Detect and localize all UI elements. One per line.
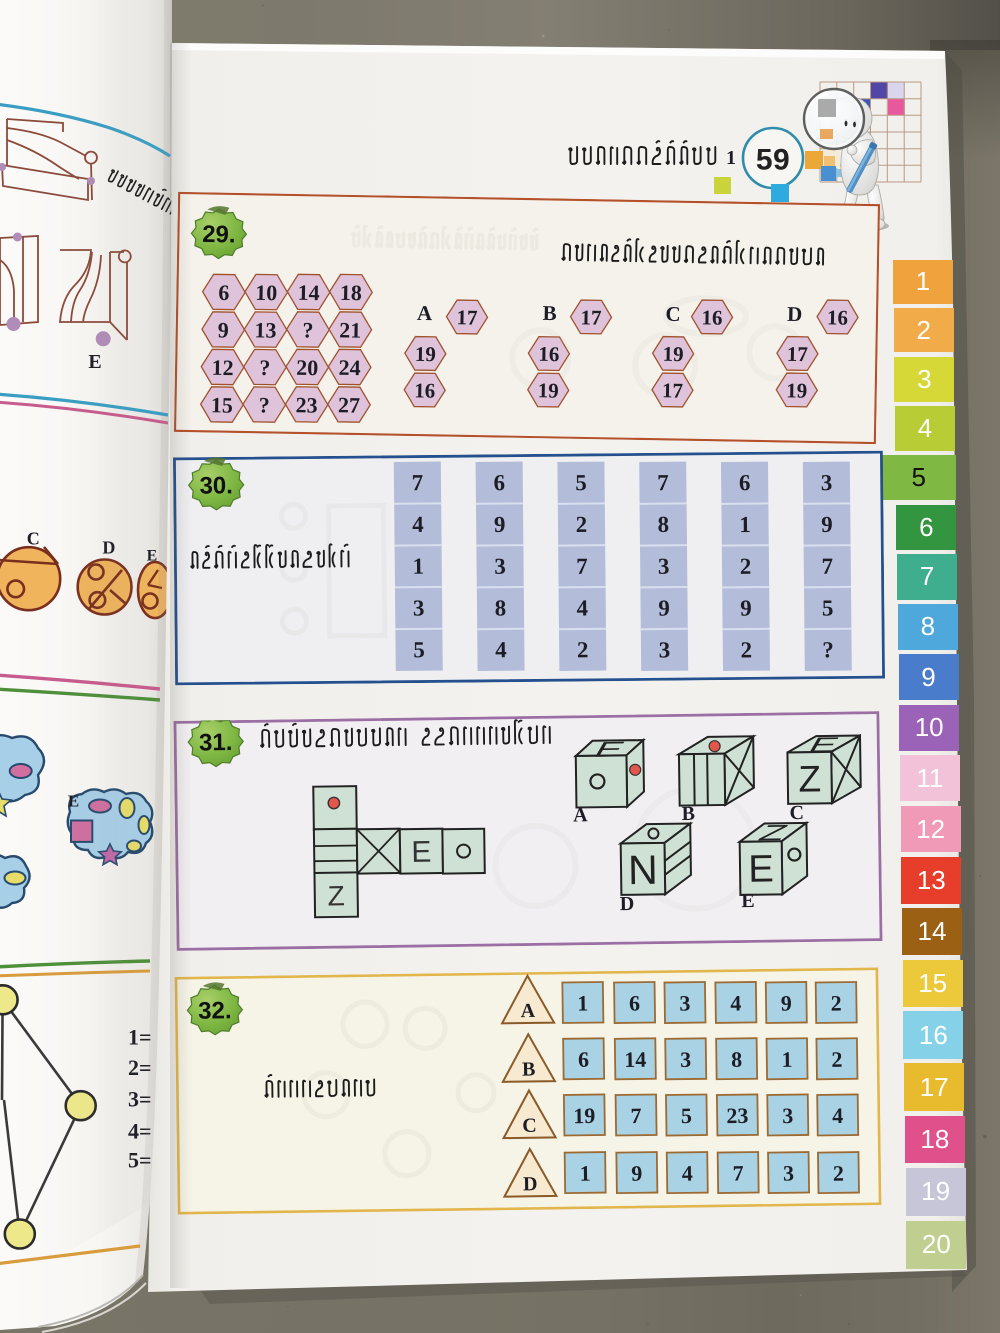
svg-text:C: C bbox=[665, 302, 681, 326]
svg-text:7: 7 bbox=[576, 554, 588, 579]
svg-text:4: 4 bbox=[682, 1161, 693, 1186]
svg-text:5: 5 bbox=[575, 470, 587, 495]
svg-text:E: E bbox=[741, 890, 755, 912]
svg-text:?: ? bbox=[259, 355, 270, 380]
svg-text:20: 20 bbox=[296, 355, 318, 380]
svg-text:3: 3 bbox=[658, 554, 670, 579]
svg-text:9: 9 bbox=[631, 1161, 642, 1186]
svg-text:5: 5 bbox=[822, 595, 834, 620]
svg-text:6: 6 bbox=[629, 990, 640, 1015]
svg-text:3: 3 bbox=[494, 554, 506, 579]
svg-text:2: 2 bbox=[740, 554, 752, 579]
svg-text:7: 7 bbox=[821, 554, 833, 579]
svg-text:23: 23 bbox=[295, 392, 317, 417]
svg-text:17: 17 bbox=[662, 378, 683, 402]
svg-text:7: 7 bbox=[732, 1161, 743, 1186]
svg-text:C: C bbox=[522, 1115, 537, 1137]
svg-text:?: ? bbox=[822, 637, 834, 662]
svg-text:9: 9 bbox=[218, 317, 229, 342]
svg-text:2: 2 bbox=[576, 512, 588, 537]
svg-text:4: 4 bbox=[576, 596, 588, 621]
svg-text:?: ? bbox=[259, 392, 270, 417]
svg-text:16: 16 bbox=[414, 378, 435, 402]
svg-text:8: 8 bbox=[495, 596, 507, 621]
svg-text:19: 19 bbox=[786, 378, 807, 402]
svg-text:7: 7 bbox=[630, 1103, 641, 1128]
svg-text:32.: 32. bbox=[198, 997, 232, 1024]
svg-text:10: 10 bbox=[255, 280, 277, 305]
svg-text:12: 12 bbox=[211, 355, 233, 380]
svg-text:3: 3 bbox=[679, 991, 690, 1016]
svg-text:7: 7 bbox=[412, 470, 424, 495]
svg-text:A: A bbox=[573, 804, 588, 826]
svg-text:?: ? bbox=[302, 317, 313, 342]
svg-text:29.: 29. bbox=[202, 221, 236, 249]
svg-text:7: 7 bbox=[657, 470, 669, 495]
svg-text:1: 1 bbox=[781, 1047, 792, 1072]
svg-text:N: N bbox=[628, 847, 658, 893]
svg-text:13: 13 bbox=[254, 317, 276, 342]
svg-text:1: 1 bbox=[412, 554, 424, 579]
svg-text:3: 3 bbox=[659, 637, 671, 662]
svg-text:D: D bbox=[620, 893, 635, 915]
svg-text:4: 4 bbox=[495, 637, 507, 662]
svg-text:8: 8 bbox=[657, 512, 669, 537]
svg-text:14: 14 bbox=[624, 1047, 646, 1072]
svg-text:6: 6 bbox=[218, 280, 229, 305]
svg-text:27: 27 bbox=[338, 392, 360, 417]
svg-text:9: 9 bbox=[658, 596, 670, 621]
svg-text:19: 19 bbox=[573, 1103, 595, 1128]
svg-text:5: 5 bbox=[413, 637, 425, 662]
svg-text:24: 24 bbox=[338, 355, 360, 380]
svg-text:2: 2 bbox=[740, 637, 752, 662]
svg-text:3: 3 bbox=[782, 1103, 793, 1128]
svg-text:C: C bbox=[27, 529, 40, 549]
svg-text:3: 3 bbox=[413, 596, 425, 621]
svg-text:16: 16 bbox=[701, 305, 722, 329]
svg-text:14: 14 bbox=[297, 280, 319, 305]
svg-text:A: A bbox=[417, 301, 433, 325]
svg-text:D: D bbox=[787, 302, 803, 326]
svg-text:9: 9 bbox=[740, 596, 752, 621]
svg-text:E: E bbox=[748, 847, 774, 890]
svg-text:Z: Z bbox=[798, 758, 821, 799]
svg-text:D: D bbox=[523, 1173, 538, 1195]
svg-text:4: 4 bbox=[730, 990, 741, 1015]
svg-text:19: 19 bbox=[662, 342, 683, 366]
svg-text:8: 8 bbox=[731, 1047, 742, 1072]
svg-text:E: E bbox=[411, 836, 431, 869]
svg-text:1: 1 bbox=[739, 512, 751, 537]
svg-text:2: 2 bbox=[577, 637, 589, 662]
svg-text:30.: 30. bbox=[199, 472, 233, 499]
svg-text:Z: Z bbox=[327, 880, 345, 911]
svg-text:19: 19 bbox=[538, 378, 559, 402]
svg-text:6: 6 bbox=[739, 470, 751, 495]
svg-text:16: 16 bbox=[538, 342, 559, 366]
svg-text:4: 4 bbox=[832, 1103, 843, 1128]
svg-text:1: 1 bbox=[579, 1161, 590, 1186]
svg-text:21: 21 bbox=[339, 317, 361, 342]
svg-text:3: 3 bbox=[783, 1161, 794, 1186]
svg-text:17: 17 bbox=[580, 305, 601, 329]
svg-text:2: 2 bbox=[833, 1161, 844, 1186]
svg-text:23: 23 bbox=[726, 1103, 748, 1128]
svg-text:15: 15 bbox=[211, 392, 233, 417]
svg-text:19: 19 bbox=[415, 342, 436, 366]
svg-text:6: 6 bbox=[493, 470, 505, 495]
svg-text:9: 9 bbox=[781, 990, 792, 1015]
svg-text:1: 1 bbox=[577, 990, 588, 1015]
svg-text:B: B bbox=[542, 301, 556, 325]
svg-text:B: B bbox=[522, 1058, 536, 1080]
svg-text:2: 2 bbox=[831, 1047, 842, 1072]
svg-text:B: B bbox=[681, 803, 695, 825]
svg-text:31.: 31. bbox=[199, 729, 233, 756]
svg-text:6: 6 bbox=[578, 1047, 589, 1072]
svg-text:17: 17 bbox=[787, 342, 808, 366]
svg-text:9: 9 bbox=[821, 512, 833, 537]
svg-text:18: 18 bbox=[340, 280, 362, 305]
svg-text:A: A bbox=[521, 1000, 536, 1022]
svg-text:17: 17 bbox=[456, 305, 477, 329]
svg-text:3: 3 bbox=[821, 470, 833, 495]
svg-text:3: 3 bbox=[680, 1047, 691, 1072]
svg-text:9: 9 bbox=[494, 512, 506, 537]
svg-text:16: 16 bbox=[827, 305, 848, 329]
svg-text:5: 5 bbox=[681, 1103, 692, 1128]
svg-text:4: 4 bbox=[412, 512, 424, 537]
svg-text:2: 2 bbox=[830, 990, 841, 1015]
